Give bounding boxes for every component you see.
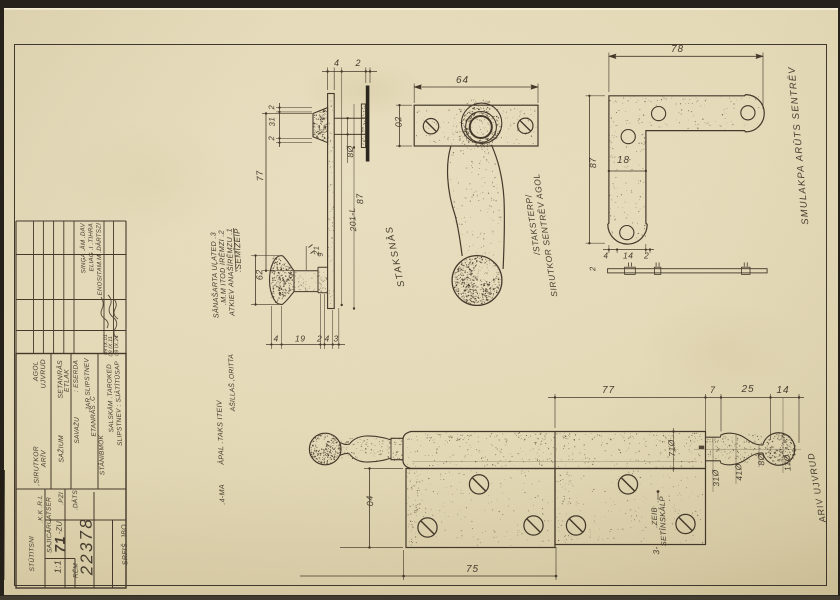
svg-text:UJVRUD: UJVRUD bbox=[40, 359, 48, 388]
svg-text:4: 4 bbox=[604, 252, 609, 261]
svg-text:STĀNIBMOK: STĀNIBMOK bbox=[97, 434, 106, 475]
svg-text:31: 31 bbox=[267, 116, 277, 126]
svg-text:SETĪNSKĀLP: SETĪNSKĀLP bbox=[658, 496, 669, 547]
svg-text:4: 4 bbox=[325, 334, 330, 344]
svg-text:-ZU: -ZU bbox=[54, 521, 63, 535]
svg-text:.K.K .R.L: .K.K .R.L bbox=[37, 495, 44, 523]
svg-text:7: 7 bbox=[710, 385, 716, 395]
svg-text:75: 75 bbox=[466, 564, 479, 575]
svg-text:2: 2 bbox=[643, 251, 649, 261]
svg-text:AGOL: AGOL bbox=[33, 361, 40, 382]
svg-text:31Ø: 31Ø bbox=[710, 468, 721, 487]
svg-text:ARĪV: ARĪV bbox=[39, 449, 47, 468]
svg-text:2: 2 bbox=[316, 334, 322, 344]
svg-text:: ESERDA: : ESERDA bbox=[73, 360, 81, 392]
svg-text:2: 2 bbox=[355, 58, 362, 68]
svg-text:STŪTITSNI: STŪTITSNI bbox=[28, 536, 37, 572]
svg-text:87: 87 bbox=[587, 156, 598, 168]
svg-text:41Ø: 41Ø bbox=[733, 462, 744, 481]
svg-text:4: 4 bbox=[274, 334, 279, 344]
svg-text:11Ø: 11Ø bbox=[781, 453, 792, 471]
svg-text:14: 14 bbox=[777, 385, 790, 396]
svg-text:71Ø: 71Ø bbox=[666, 438, 677, 457]
svg-text:04: 04 bbox=[365, 495, 376, 507]
svg-text:2: 2 bbox=[267, 104, 276, 110]
svg-text:71: 71 bbox=[52, 536, 68, 553]
svg-text:4: 4 bbox=[334, 58, 340, 68]
svg-text:14: 14 bbox=[623, 251, 633, 261]
svg-text:ELIAG .I .TIHRA: ELIAG .I .TIHRA bbox=[88, 223, 96, 272]
svg-text:22378: 22378 bbox=[77, 517, 97, 577]
svg-text:SAVAŽU: SAVAŽU bbox=[71, 417, 80, 444]
svg-text:.PZI: .PZI bbox=[58, 492, 65, 505]
svg-text:62: 62 bbox=[254, 269, 265, 281]
svg-text:18: 18 bbox=[617, 155, 630, 166]
svg-text:SINĢA .ĀM .DAV: SINĢA .ĀM .DAV bbox=[79, 222, 87, 273]
svg-text:8Ø: 8Ø bbox=[755, 452, 766, 466]
svg-text:ENOSITAM.M .DĀRTSZI: ENOSITAM.M .DĀRTSZI bbox=[95, 223, 103, 296]
svg-text:77: 77 bbox=[602, 385, 615, 396]
svg-text:78: 78 bbox=[671, 44, 684, 55]
svg-text:.DĀTS: .DĀTS bbox=[71, 490, 79, 511]
svg-text:ETANRĀS .C: ETANRĀS .C bbox=[89, 396, 98, 437]
svg-text:1:1: 1:1 bbox=[53, 560, 63, 574]
svg-text:.4-MA: .4-MA bbox=[217, 484, 227, 505]
svg-text:77: 77 bbox=[254, 169, 265, 181]
svg-text:3: 3 bbox=[334, 334, 339, 344]
svg-text:87: 87 bbox=[354, 192, 365, 204]
svg-text:,SIRUTKOR: ,SIRUTKOR bbox=[33, 446, 41, 486]
svg-text:2: 2 bbox=[588, 266, 597, 273]
svg-text:.ZEIB: .ZEIB bbox=[650, 507, 660, 528]
svg-text:2: 2 bbox=[267, 135, 276, 141]
svg-text:02: 02 bbox=[393, 116, 404, 128]
svg-text:64: 64 bbox=[456, 75, 469, 86]
svg-text:3-: 3- bbox=[651, 546, 661, 555]
svg-text:ETLAK: ETLAK bbox=[63, 369, 70, 392]
svg-text:201-L: 201-L bbox=[347, 207, 359, 233]
svg-text:25: 25 bbox=[741, 384, 755, 395]
svg-text:19: 19 bbox=[295, 334, 305, 344]
